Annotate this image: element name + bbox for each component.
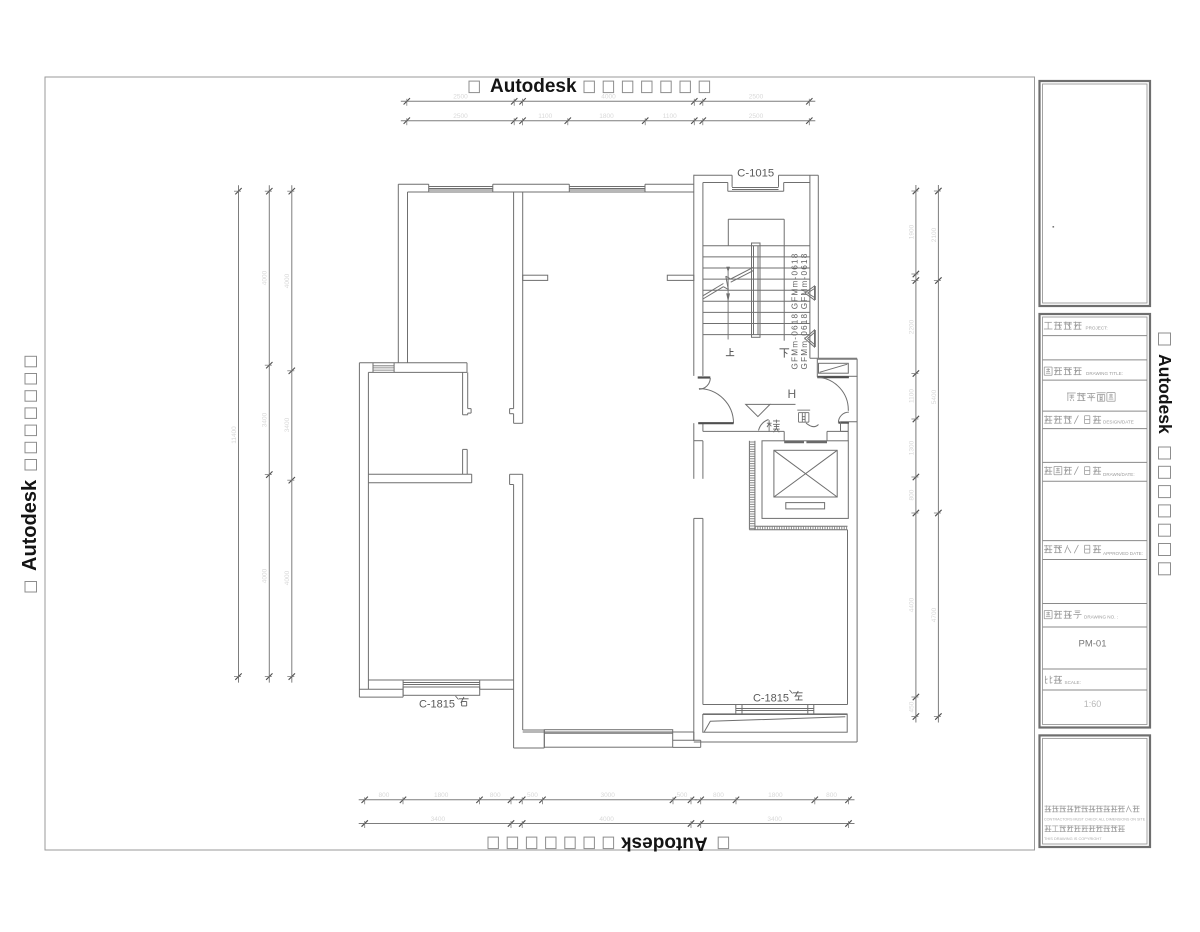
svg-text:Autodesk: Autodesk <box>19 479 41 571</box>
svg-text:PROJECT:: PROJECT: <box>1086 326 1108 331</box>
svg-text:4000: 4000 <box>599 816 614 823</box>
svg-text:4000: 4000 <box>284 273 291 288</box>
svg-text:APPROVED DATE:: APPROVED DATE: <box>1103 551 1143 556</box>
svg-text:1800: 1800 <box>768 792 783 799</box>
svg-text:3000: 3000 <box>600 792 615 799</box>
svg-text:3400: 3400 <box>431 816 446 823</box>
svg-text:2500: 2500 <box>453 94 468 101</box>
svg-text:2500: 2500 <box>453 113 468 120</box>
svg-text:DRAWN/DATE:: DRAWN/DATE: <box>1103 472 1135 477</box>
svg-text:11400: 11400 <box>231 426 238 444</box>
svg-text:500: 500 <box>527 792 538 799</box>
svg-text:GFMm-0618 GFMm-0618: GFMm-0618 GFMm-0618 <box>800 253 809 370</box>
svg-text:1300: 1300 <box>908 440 915 455</box>
svg-text:450: 450 <box>908 701 915 712</box>
svg-text:DRAWING TITLE:: DRAWING TITLE: <box>1086 371 1123 376</box>
svg-text:800: 800 <box>713 792 724 799</box>
svg-text:DRAWING NO. :: DRAWING NO. : <box>1084 615 1118 620</box>
svg-text:DESIGN/DATE: DESIGN/DATE <box>1103 420 1134 425</box>
svg-text:4000: 4000 <box>284 570 291 585</box>
svg-text:C-1815: C-1815 <box>753 693 789 705</box>
svg-text:1100: 1100 <box>538 113 552 120</box>
svg-text:1100: 1100 <box>908 389 915 403</box>
svg-text:Autodesk: Autodesk <box>621 833 708 854</box>
svg-text:C-1015: C-1015 <box>737 168 774 180</box>
svg-text:4000: 4000 <box>601 94 616 101</box>
svg-text:800: 800 <box>826 792 837 799</box>
svg-text:1:60: 1:60 <box>1084 699 1102 709</box>
svg-text:5400: 5400 <box>931 389 938 404</box>
svg-text:3400: 3400 <box>284 417 291 432</box>
svg-text:2500: 2500 <box>749 94 764 101</box>
svg-text:SCALE:: SCALE: <box>1065 680 1081 685</box>
svg-text:800: 800 <box>908 489 915 500</box>
svg-text:CONTRACTORS MUST CHECK ALL DIM: CONTRACTORS MUST CHECK ALL DIMENSIONS ON… <box>1044 818 1146 822</box>
svg-text:800: 800 <box>378 792 389 799</box>
svg-text:4000: 4000 <box>262 270 269 285</box>
svg-text:800: 800 <box>490 792 501 799</box>
svg-text:4400: 4400 <box>908 597 915 612</box>
svg-text:1800: 1800 <box>434 792 449 799</box>
svg-text:500: 500 <box>677 792 688 799</box>
svg-text:1900: 1900 <box>908 224 915 239</box>
svg-text:2500: 2500 <box>749 113 764 120</box>
svg-text:THIS DRAWING IS COPYRIGHT: THIS DRAWING IS COPYRIGHT <box>1044 836 1102 841</box>
svg-text:1800: 1800 <box>599 113 614 120</box>
svg-text:PM-01: PM-01 <box>1079 639 1107 650</box>
svg-text:4700: 4700 <box>931 607 938 622</box>
svg-text:3400: 3400 <box>262 412 269 427</box>
svg-text:H: H <box>787 387 796 401</box>
svg-text:2100: 2100 <box>931 227 938 242</box>
svg-text:C-1815: C-1815 <box>419 699 455 711</box>
svg-text:2200: 2200 <box>908 319 915 334</box>
svg-text:GFMm-0618 GFMm-0618: GFMm-0618 GFMm-0618 <box>790 253 799 370</box>
svg-text:4000: 4000 <box>262 568 269 583</box>
svg-text:3400: 3400 <box>767 816 782 823</box>
svg-text:1100: 1100 <box>663 113 677 120</box>
svg-text:Autodesk: Autodesk <box>1155 354 1175 434</box>
svg-text:Autodesk: Autodesk <box>490 76 577 97</box>
